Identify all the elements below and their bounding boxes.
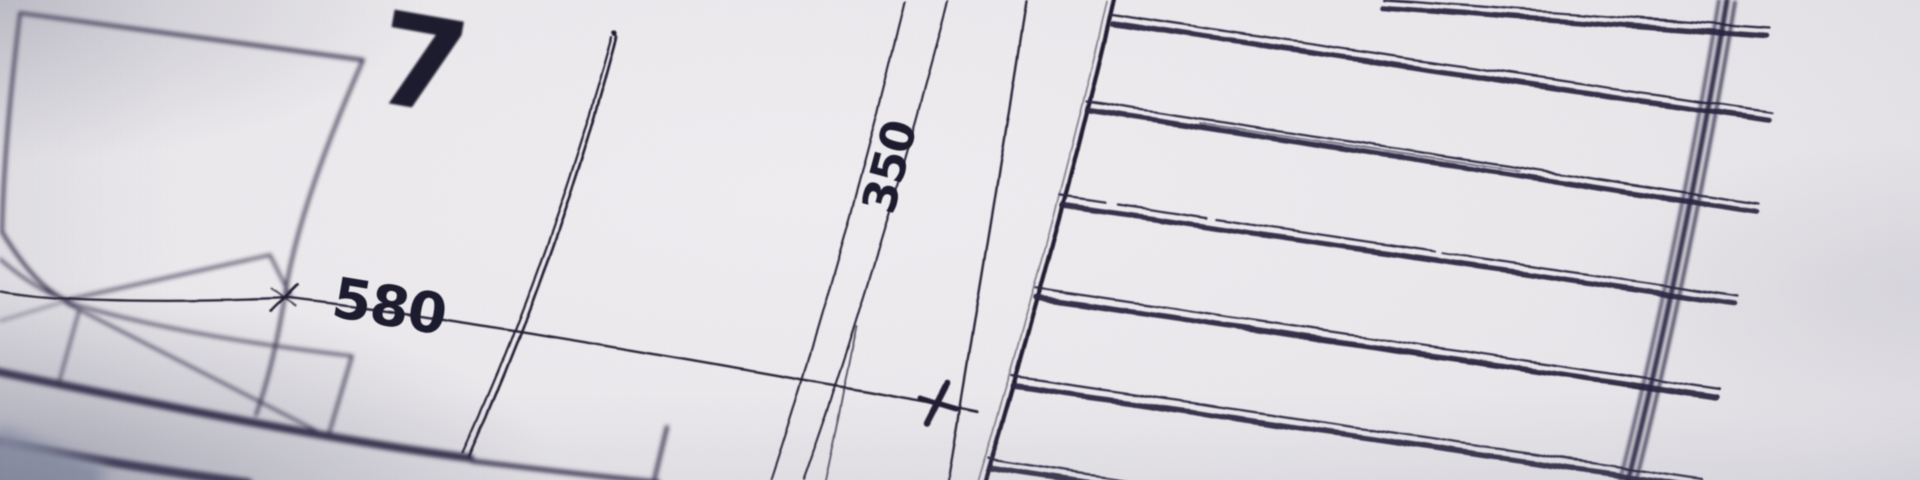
blueprint-photo: 7 580 350 xyxy=(0,0,1920,480)
photo-grain xyxy=(0,0,1920,480)
drawing-canvas: 7 580 350 xyxy=(0,0,1920,480)
